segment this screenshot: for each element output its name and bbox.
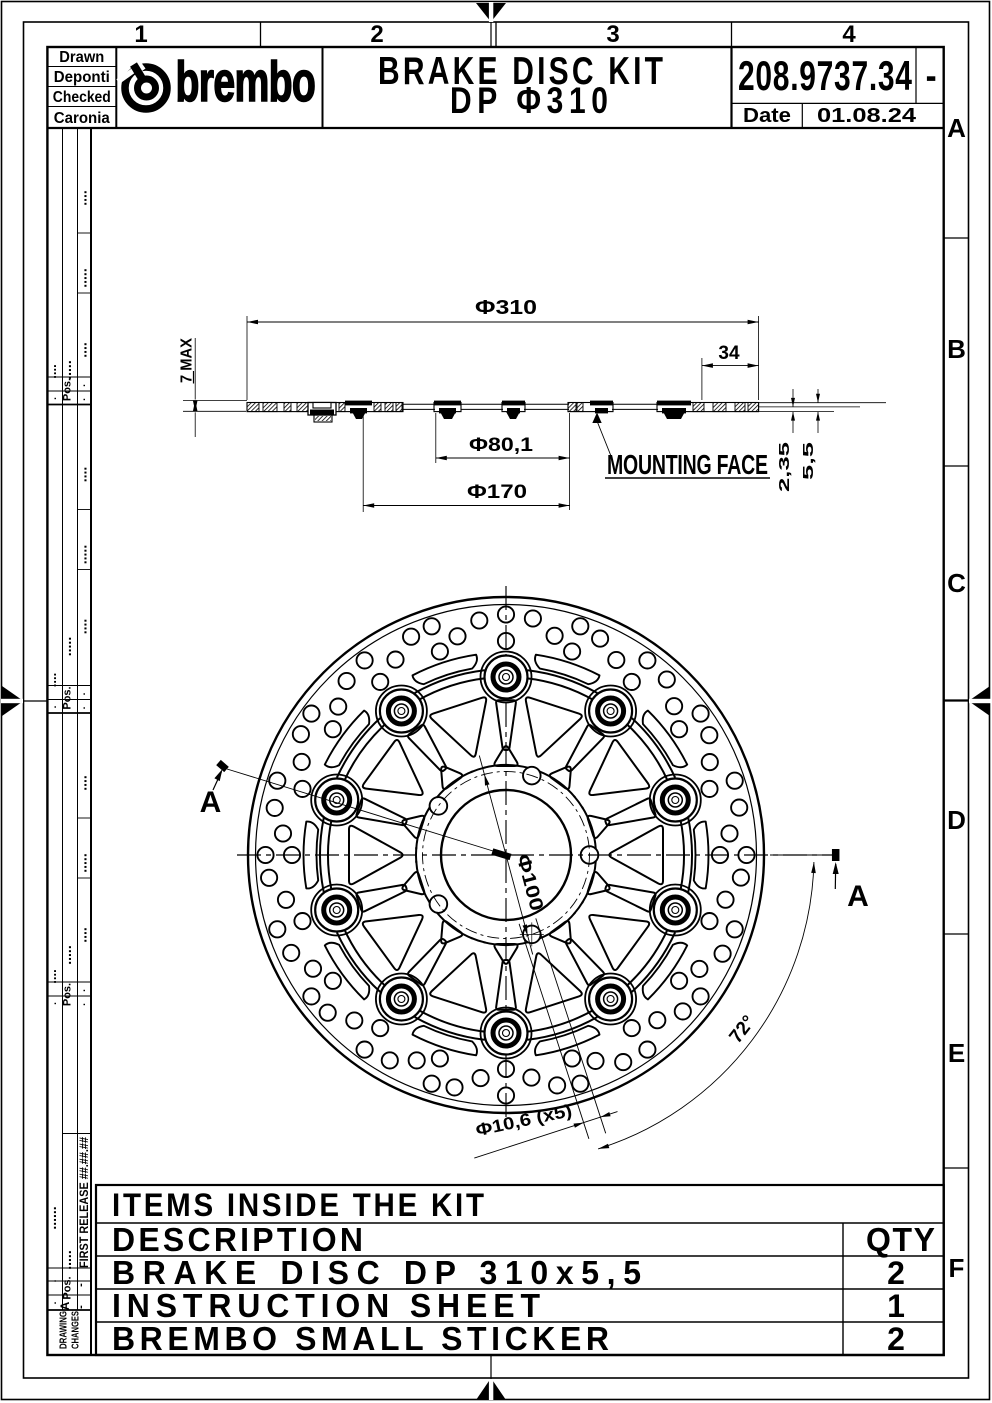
svg-text:brembo: brembo bbox=[176, 51, 316, 114]
svg-text:A: A bbox=[200, 786, 222, 819]
svg-text:.....: ..... bbox=[58, 1250, 74, 1269]
svg-text:.: . bbox=[48, 705, 59, 708]
svg-text:.: . bbox=[48, 1002, 59, 1005]
svg-text:2,35: 2,35 bbox=[776, 442, 793, 492]
svg-text:-: - bbox=[75, 1283, 87, 1287]
svg-text:.....: ..... bbox=[74, 268, 90, 287]
svg-text:2: 2 bbox=[887, 1321, 905, 1357]
svg-text:......: ...... bbox=[43, 1206, 59, 1229]
svg-text:5,5: 5,5 bbox=[800, 442, 817, 480]
svg-text:Deponti: Deponti bbox=[54, 69, 110, 86]
svg-text:-: - bbox=[75, 1305, 87, 1309]
svg-text:Φ80,1: Φ80,1 bbox=[469, 435, 534, 456]
svg-text:CHANGES: CHANGES bbox=[71, 1311, 82, 1349]
svg-text:01.08.24: 01.08.24 bbox=[817, 105, 917, 127]
svg-text:.: . bbox=[77, 398, 88, 401]
svg-text:....: .... bbox=[44, 969, 59, 983]
svg-text:F: F bbox=[949, 1253, 965, 1283]
svg-text:....: .... bbox=[74, 619, 90, 635]
svg-text:Pos.: Pos. bbox=[62, 686, 74, 709]
svg-text:Date: Date bbox=[743, 105, 791, 127]
svg-text:....: .... bbox=[74, 190, 90, 206]
svg-text:B: B bbox=[947, 334, 966, 364]
svg-text:....: .... bbox=[44, 673, 59, 687]
svg-text:A: A bbox=[847, 880, 869, 913]
svg-text:A: A bbox=[947, 113, 966, 143]
svg-text:Φ310: Φ310 bbox=[475, 297, 537, 319]
svg-text:....: .... bbox=[74, 342, 90, 358]
svg-text:.....: ..... bbox=[74, 545, 90, 564]
svg-text:Φ170: Φ170 bbox=[467, 482, 527, 503]
svg-text:.: . bbox=[77, 1003, 88, 1006]
svg-text:DRAWING: DRAWING bbox=[59, 1311, 70, 1349]
svg-text:208.9737.34: 208.9737.34 bbox=[738, 52, 912, 99]
svg-text:E: E bbox=[948, 1038, 965, 1068]
svg-text:QTY: QTY bbox=[866, 1220, 935, 1258]
svg-text:FIRST RELEASE ##.##.##: FIRST RELEASE ##.##.## bbox=[77, 1137, 91, 1268]
svg-text:MOUNTING FACE: MOUNTING FACE bbox=[607, 450, 768, 481]
svg-text:Checked: Checked bbox=[53, 89, 111, 106]
svg-text:.: . bbox=[77, 384, 88, 387]
svg-text:A: A bbox=[58, 1301, 72, 1310]
svg-text:Drawn: Drawn bbox=[59, 49, 104, 66]
svg-text:.....: ..... bbox=[58, 945, 74, 964]
svg-text:.: . bbox=[48, 397, 59, 400]
svg-text:Pos.: Pos. bbox=[62, 378, 74, 401]
svg-text:.: . bbox=[77, 989, 88, 992]
svg-text:3: 3 bbox=[606, 21, 619, 48]
svg-text:1: 1 bbox=[134, 21, 147, 48]
svg-text:Caronia: Caronia bbox=[54, 110, 110, 127]
svg-text:1: 1 bbox=[887, 1288, 905, 1324]
svg-text:34: 34 bbox=[718, 343, 740, 364]
svg-text:4: 4 bbox=[842, 21, 856, 48]
svg-text:2: 2 bbox=[887, 1255, 905, 1291]
svg-text:....: .... bbox=[74, 775, 90, 791]
svg-text:2: 2 bbox=[370, 21, 383, 48]
svg-text:Pos.: Pos. bbox=[62, 1276, 74, 1299]
svg-text:C: C bbox=[947, 568, 966, 598]
svg-text:.....: ..... bbox=[58, 637, 74, 656]
svg-text:.: . bbox=[77, 692, 88, 695]
svg-text:Pos.: Pos. bbox=[62, 983, 74, 1006]
svg-text:....: .... bbox=[74, 467, 90, 483]
svg-text:D: D bbox=[947, 805, 966, 835]
svg-text:.: . bbox=[48, 1279, 59, 1282]
svg-text:BREMBO SMALL STICKER: BREMBO SMALL STICKER bbox=[112, 1319, 609, 1357]
svg-text:....: .... bbox=[74, 927, 90, 943]
svg-text:.....: ..... bbox=[74, 853, 90, 872]
svg-text:.: . bbox=[48, 1301, 59, 1304]
svg-text:....: .... bbox=[44, 364, 59, 378]
svg-text:.: . bbox=[77, 706, 88, 709]
